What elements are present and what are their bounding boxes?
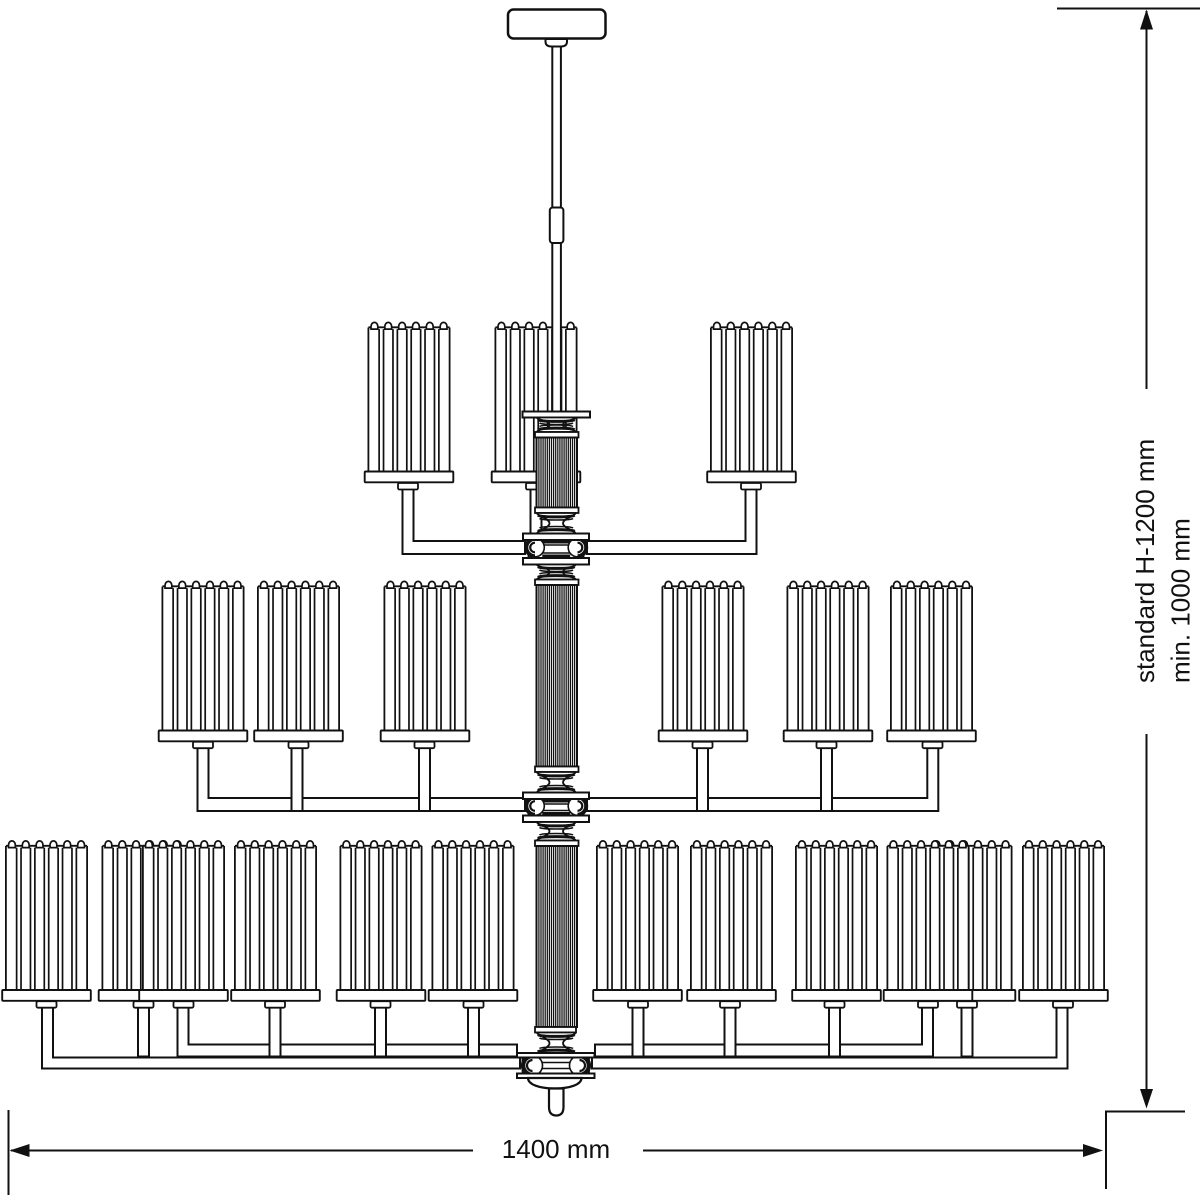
- svg-text:1400 mm: 1400 mm: [502, 1134, 610, 1164]
- svg-text:standard H-1200 mm: standard H-1200 mm: [1130, 439, 1160, 683]
- svg-text:min. 1000 mm: min. 1000 mm: [1166, 518, 1196, 683]
